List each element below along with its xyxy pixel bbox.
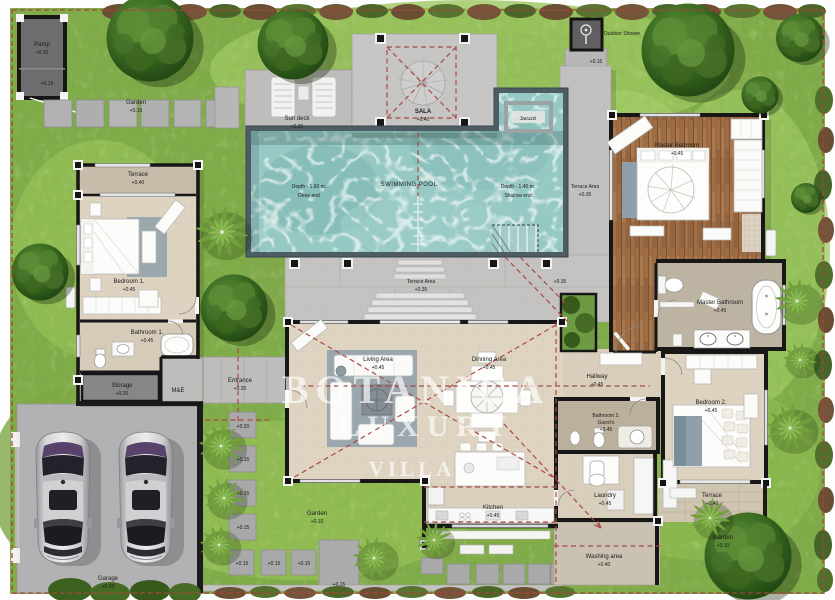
svg-text:Garden: Garden [713, 535, 733, 541]
svg-text:Sun deck: Sun deck [284, 116, 310, 122]
svg-text:Depth - 1.40 m.: Depth - 1.40 m. [501, 184, 535, 190]
svg-text:+0.35: +0.35 [234, 386, 247, 392]
svg-text:+0.35: +0.35 [415, 287, 428, 293]
svg-text:+0.40: +0.40 [417, 117, 430, 123]
svg-text:Terrace Area: Terrace Area [407, 279, 436, 285]
svg-text:Hallway: Hallway [586, 374, 607, 380]
svg-text:Master Bathroom: Master Bathroom [697, 300, 743, 306]
svg-text:Kitchen: Kitchen [483, 505, 503, 511]
svg-text:+0.35: +0.35 [579, 192, 592, 198]
svg-text:Garden: Garden [126, 100, 146, 106]
svg-text:Garden: Garden [307, 511, 327, 517]
svg-text:+0.20: +0.20 [116, 391, 129, 397]
svg-text:VILLA: VILLA [369, 457, 456, 481]
svg-text:Terrace Area: Terrace Area [571, 184, 600, 190]
svg-text:Living Area: Living Area [363, 357, 393, 363]
svg-text:+0.45: +0.45 [600, 427, 613, 433]
svg-text:+0.10: +0.10 [717, 543, 730, 549]
svg-text:Bathroom 2.: Bathroom 2. [592, 413, 619, 419]
svg-text:Depth - 1.60 m.: Depth - 1.60 m. [292, 184, 326, 190]
svg-text:+0.15: +0.15 [590, 59, 603, 65]
svg-text:Entrance: Entrance [228, 378, 253, 384]
svg-text:+0.15: +0.15 [237, 457, 250, 463]
svg-text:+0.15: +0.15 [268, 561, 281, 567]
svg-text:Jacuzzi: Jacuzzi [520, 116, 537, 122]
svg-text:Dinning Area: Dinning Area [472, 357, 507, 363]
svg-text:Pamp: Pamp [34, 42, 50, 48]
svg-text:Storage: Storage [111, 383, 133, 389]
svg-text:+0.15: +0.15 [298, 561, 311, 567]
svg-text:+0.15: +0.15 [237, 525, 250, 531]
svg-text:+0.40: +0.40 [132, 180, 145, 186]
svg-text:Laundry: Laundry [594, 493, 616, 499]
svg-text:+0.45: +0.45 [599, 501, 612, 507]
svg-text:+0.45: +0.45 [714, 308, 727, 314]
svg-text:Terrace: Terrace [702, 493, 723, 499]
svg-text:+0.15: +0.15 [236, 561, 249, 567]
svg-text:+0.45: +0.45 [487, 513, 500, 519]
svg-text:+0.35: +0.35 [291, 124, 304, 130]
svg-text:+0.10: +0.10 [311, 519, 324, 525]
svg-text:Master Bedroom: Master Bedroom [655, 143, 699, 149]
svg-text:LUXURY: LUXURY [339, 410, 514, 443]
svg-text:Shallow end: Shallow end [504, 193, 531, 199]
svg-text:SWIMMING POOL: SWIMMING POOL [381, 182, 438, 188]
svg-text:+0.20: +0.20 [36, 50, 49, 56]
svg-text:Bedroom 2.: Bedroom 2. [695, 400, 726, 406]
svg-text:Bathroom 1.: Bathroom 1. [131, 330, 164, 336]
svg-text:+0.45: +0.45 [372, 365, 385, 371]
svg-text:Washing area: Washing area [586, 554, 623, 560]
svg-text:+0.15: +0.15 [237, 491, 250, 497]
svg-text:+0.40: +0.40 [598, 562, 611, 568]
svg-text:+0.45: +0.45 [123, 287, 136, 293]
svg-text:Bedroom 1.: Bedroom 1. [113, 279, 144, 285]
svg-text:+0.15: +0.15 [130, 108, 143, 114]
svg-text:Outdoor Shower: Outdoor Shower [604, 31, 641, 37]
svg-text:Garage: Garage [98, 576, 119, 582]
svg-text:+0.45: +0.45 [483, 365, 496, 371]
svg-text:M&E: M&E [171, 388, 184, 394]
svg-text:Deep end: Deep end [298, 193, 320, 199]
svg-text:+0.45: +0.45 [141, 338, 154, 344]
svg-text:BOTANICA: BOTANICA [282, 367, 551, 412]
svg-text:+0.45: +0.45 [671, 151, 684, 157]
svg-text:+0.45: +0.45 [591, 382, 604, 388]
svg-text:+0.20: +0.20 [102, 584, 115, 590]
svg-text:+0.15: +0.15 [41, 81, 54, 87]
svg-text:+0.15: +0.15 [333, 582, 346, 588]
svg-text:Terrace: Terrace [128, 172, 149, 178]
svg-text:+0.45: +0.45 [705, 408, 718, 414]
svg-text:SALA: SALA [415, 109, 432, 115]
svg-text:Guest's: Guest's [598, 420, 615, 426]
svg-text:+0.40: +0.40 [706, 501, 719, 507]
svg-text:+0.35: +0.35 [554, 279, 567, 285]
svg-text:+0.20: +0.20 [237, 424, 250, 430]
